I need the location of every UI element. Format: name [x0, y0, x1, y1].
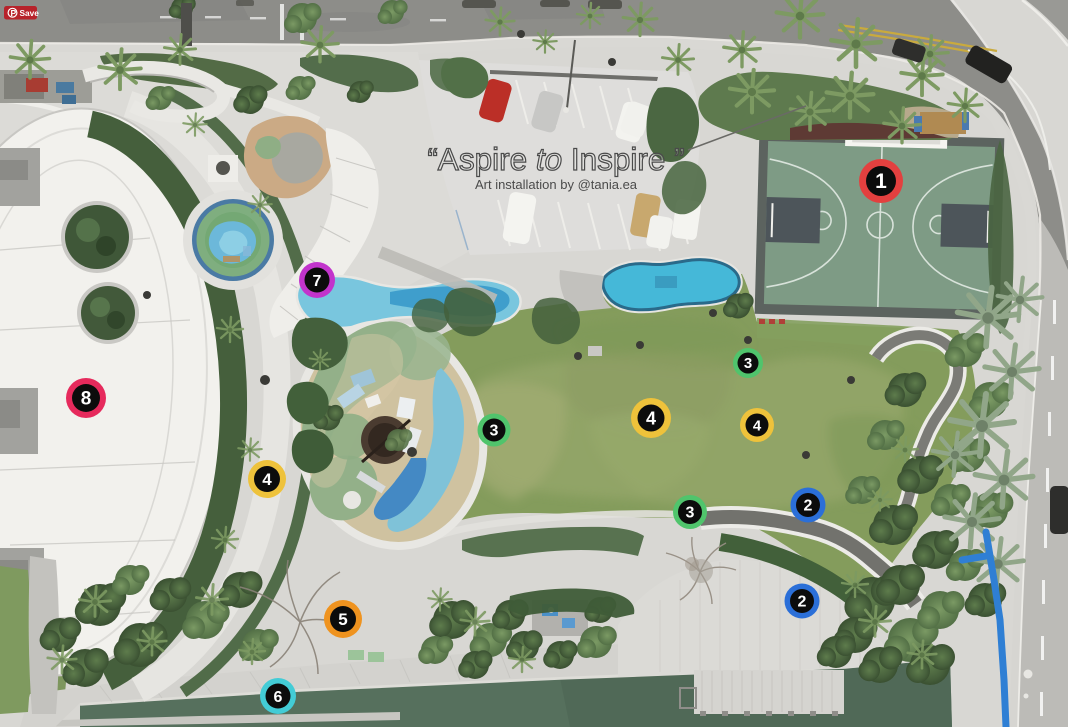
svg-text:“Aspire to Inspire ”: “Aspire to Inspire ”: [427, 141, 684, 177]
svg-text:3: 3: [490, 423, 499, 440]
svg-text:4: 4: [262, 470, 272, 489]
svg-text:6: 6: [274, 689, 283, 706]
svg-text:Save: Save: [20, 8, 40, 18]
svg-text:3: 3: [744, 355, 752, 372]
svg-text:P: P: [11, 8, 17, 18]
svg-text:5: 5: [338, 610, 347, 629]
svg-text:Art installation by @tania.ea: Art installation by @tania.ea: [475, 177, 638, 192]
svg-text:7: 7: [313, 273, 322, 290]
svg-text:4: 4: [753, 418, 762, 435]
svg-text:8: 8: [81, 389, 92, 410]
svg-text:2: 2: [804, 498, 813, 515]
svg-text:2: 2: [798, 594, 807, 611]
svg-text:4: 4: [646, 409, 656, 429]
svg-text:1: 1: [875, 170, 887, 193]
svg-text:3: 3: [686, 505, 695, 522]
